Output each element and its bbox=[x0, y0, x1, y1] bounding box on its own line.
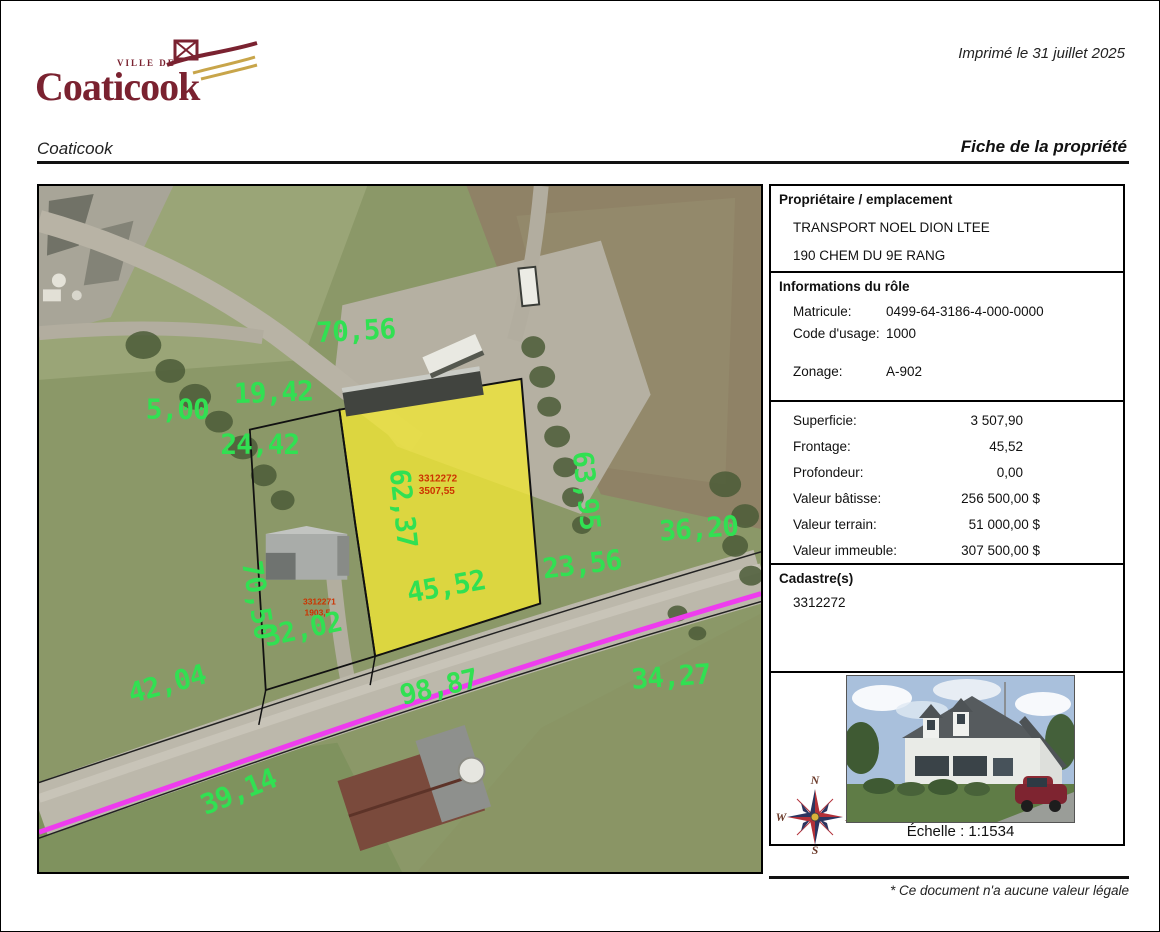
owner-section: Propriétaire / emplacement TRANSPORT NOE… bbox=[771, 186, 1123, 271]
photo-scale-box: N E S W bbox=[769, 673, 1125, 846]
valeur-batisse-label: Valeur bâtisse: bbox=[793, 491, 881, 506]
parcel-label-area: 3507,55 bbox=[419, 486, 455, 497]
aerial-map: 3312272 3507,55 3312271 1903,5 70,56 5,0… bbox=[39, 186, 761, 872]
header-rule bbox=[37, 161, 1129, 164]
legal-disclaimer: * Ce document n'a aucune valeur légale bbox=[890, 883, 1129, 898]
page-title: Fiche de la propriété bbox=[961, 137, 1127, 157]
profondeur-value: 0,00 bbox=[997, 465, 1040, 480]
matricule-label: Matricule: bbox=[793, 304, 886, 319]
measurement-label: 19,42 bbox=[233, 374, 313, 410]
valeur-terrain-label: Valeur terrain: bbox=[793, 517, 877, 532]
municipality-name: Coaticook bbox=[37, 139, 113, 159]
superficie-value: 3 507,90 bbox=[970, 413, 1040, 428]
cadastre-number: 3312272 bbox=[771, 595, 1123, 610]
usage-code-value: 1000 bbox=[886, 326, 916, 341]
compass-n: N bbox=[810, 773, 821, 787]
property-info-panel: Propriétaire / emplacement TRANSPORT NOE… bbox=[769, 184, 1125, 846]
adjacent-label-cadastre: 3312271 bbox=[303, 597, 336, 607]
logo-name-text: Coaticook bbox=[35, 63, 199, 110]
valeur-terrain-value: 51 000,00 $ bbox=[969, 517, 1040, 532]
frontage-label: Frontage: bbox=[793, 439, 851, 454]
footer-rule bbox=[769, 876, 1129, 879]
property-photo bbox=[846, 675, 1075, 823]
profondeur-label: Profondeur: bbox=[793, 465, 864, 480]
measurement-label: 5,00 bbox=[146, 393, 209, 426]
owner-section-header: Propriétaire / emplacement bbox=[771, 186, 1123, 207]
cadastre-section-header: Cadastre(s) bbox=[771, 565, 1123, 586]
superficie-label: Superficie: bbox=[793, 413, 857, 428]
compass-s: S bbox=[812, 843, 819, 855]
measurement-label: 24,42 bbox=[220, 427, 299, 460]
neighbor-house bbox=[266, 526, 350, 580]
aerial-map-panel: 3312272 3507,55 3312271 1903,5 70,56 5,0… bbox=[37, 184, 763, 874]
frontage-value: 45,52 bbox=[989, 439, 1040, 454]
measurement-label: 34,27 bbox=[630, 657, 711, 695]
zonage-value: A-902 bbox=[886, 364, 922, 379]
property-sheet-page: VILLE DE Coaticook Imprimé le 31 juillet… bbox=[0, 0, 1160, 932]
matricule-value: 0499-64-3186-4-000-0000 bbox=[886, 304, 1044, 319]
owner-address: 190 CHEM DU 9E RANG bbox=[771, 248, 1123, 263]
valeur-immeuble-value: 307 500,00 $ bbox=[961, 543, 1040, 558]
valeur-immeuble-label: Valeur immeuble: bbox=[793, 543, 897, 558]
compass-w: W bbox=[776, 810, 788, 824]
trailer bbox=[518, 267, 539, 306]
valuation-section: Superficie:3 507,90 Frontage:45,52 Profo… bbox=[771, 400, 1123, 563]
measurement-label: 70,56 bbox=[316, 312, 397, 349]
compass-rose-icon: N E S W bbox=[775, 771, 855, 855]
measurement-label: 36,20 bbox=[658, 509, 739, 547]
role-section-header: Informations du rôle bbox=[771, 273, 1123, 294]
valeur-batisse-value: 256 500,00 $ bbox=[961, 491, 1040, 506]
silo bbox=[459, 758, 485, 784]
usage-code-label: Code d'usage: bbox=[793, 326, 886, 341]
printed-date: Imprimé le 31 juillet 2025 bbox=[958, 45, 1125, 62]
parcel-label-cadastre: 3312272 bbox=[418, 473, 457, 484]
owner-name: TRANSPORT NOEL DION LTEE bbox=[771, 220, 1123, 235]
zonage-label: Zonage: bbox=[793, 364, 886, 379]
cadastre-section: Cadastre(s) 3312272 bbox=[771, 563, 1123, 675]
scale-label: Échelle : 1:1534 bbox=[846, 823, 1075, 840]
role-section: Informations du rôle Matricule: 0499-64-… bbox=[771, 271, 1123, 400]
coaticook-logo: VILLE DE Coaticook bbox=[35, 35, 265, 115]
